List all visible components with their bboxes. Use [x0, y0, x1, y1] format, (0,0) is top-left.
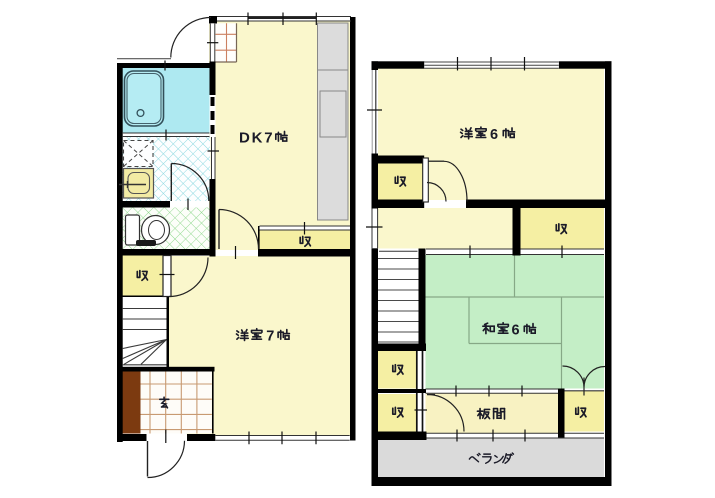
svg-text:7: 7	[266, 328, 274, 344]
svg-text:DK7: DK7	[239, 130, 274, 147]
svg-text:6: 6	[512, 323, 520, 339]
svg-text:6: 6	[490, 127, 498, 143]
